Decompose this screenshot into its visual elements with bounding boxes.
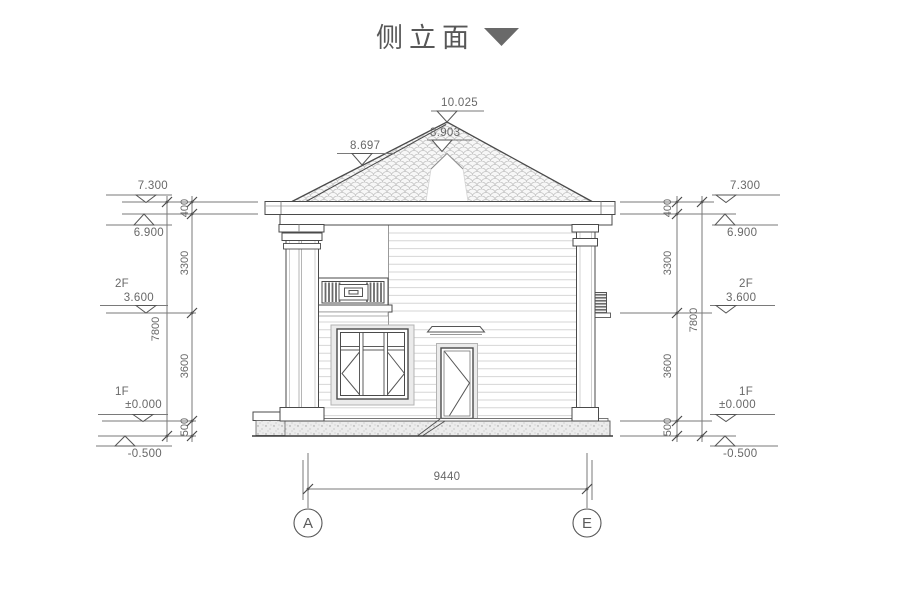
right-elevation-3600: 3.600 bbox=[726, 292, 756, 304]
right-elevation-6900: 6.900 bbox=[727, 227, 757, 239]
right-elevation-neg500: -0.500 bbox=[723, 448, 757, 460]
left-elevation-7300: 7.300 bbox=[104, 180, 168, 192]
column-left bbox=[279, 225, 324, 422]
right-dim-500: 500 bbox=[662, 397, 674, 457]
left-dim-3300: 3300 bbox=[179, 233, 191, 293]
left-dim-3600: 3600 bbox=[179, 336, 191, 396]
entry-door bbox=[428, 327, 485, 419]
bottom-dim-9440: 9440 bbox=[424, 471, 470, 483]
grid-bubble-e-label: E bbox=[573, 515, 601, 532]
left-floor1-label: 1F bbox=[102, 386, 142, 398]
eave-fascia bbox=[265, 202, 615, 226]
right-floor2-label: 2F bbox=[739, 278, 753, 290]
window-mullion-left bbox=[360, 333, 364, 396]
left-elevation-3600: 3.600 bbox=[100, 292, 154, 304]
window-mullion-right bbox=[384, 333, 388, 396]
left-dim-500: 500 bbox=[179, 397, 191, 457]
right-dim-3300: 3300 bbox=[662, 233, 674, 293]
right-floor1-label: 1F bbox=[739, 386, 753, 398]
lattice-window bbox=[314, 278, 392, 316]
left-elevation-0000: ±0.000 bbox=[96, 399, 162, 411]
left-dim-total-7800: 7800 bbox=[150, 299, 162, 359]
roof-slope-elevation: 8.697 bbox=[350, 140, 380, 152]
right-elevation-0000: ±0.000 bbox=[719, 399, 756, 411]
right-elevation-7300: 7.300 bbox=[730, 180, 760, 192]
grid-bubble-a-label: A bbox=[294, 515, 322, 532]
window-transom bbox=[341, 347, 405, 351]
garden-wall bbox=[256, 421, 285, 436]
lattice-window-sill bbox=[314, 305, 392, 312]
left-dim-400: 400 bbox=[179, 178, 191, 238]
first-floor-window bbox=[331, 325, 414, 405]
title-triangle-icon bbox=[484, 28, 519, 46]
elevation-sheet: 侧立面 bbox=[0, 0, 910, 612]
left-elevation-6900: 6.900 bbox=[104, 227, 164, 239]
elevation-drawing bbox=[0, 0, 910, 612]
grid-bubbles bbox=[294, 509, 601, 537]
left-elevation-neg500: -0.500 bbox=[100, 448, 162, 460]
right-dim-3600: 3600 bbox=[662, 336, 674, 396]
roof-ridge-elevation: 8.903 bbox=[430, 127, 460, 139]
column-right bbox=[572, 225, 599, 422]
door-canopy bbox=[428, 327, 485, 333]
roof-peak-elevation: 10.025 bbox=[441, 97, 478, 109]
right-dim-400: 400 bbox=[662, 178, 674, 238]
left-floor2-label: 2F bbox=[102, 278, 142, 290]
right-dim-total-7800: 7800 bbox=[688, 290, 700, 350]
